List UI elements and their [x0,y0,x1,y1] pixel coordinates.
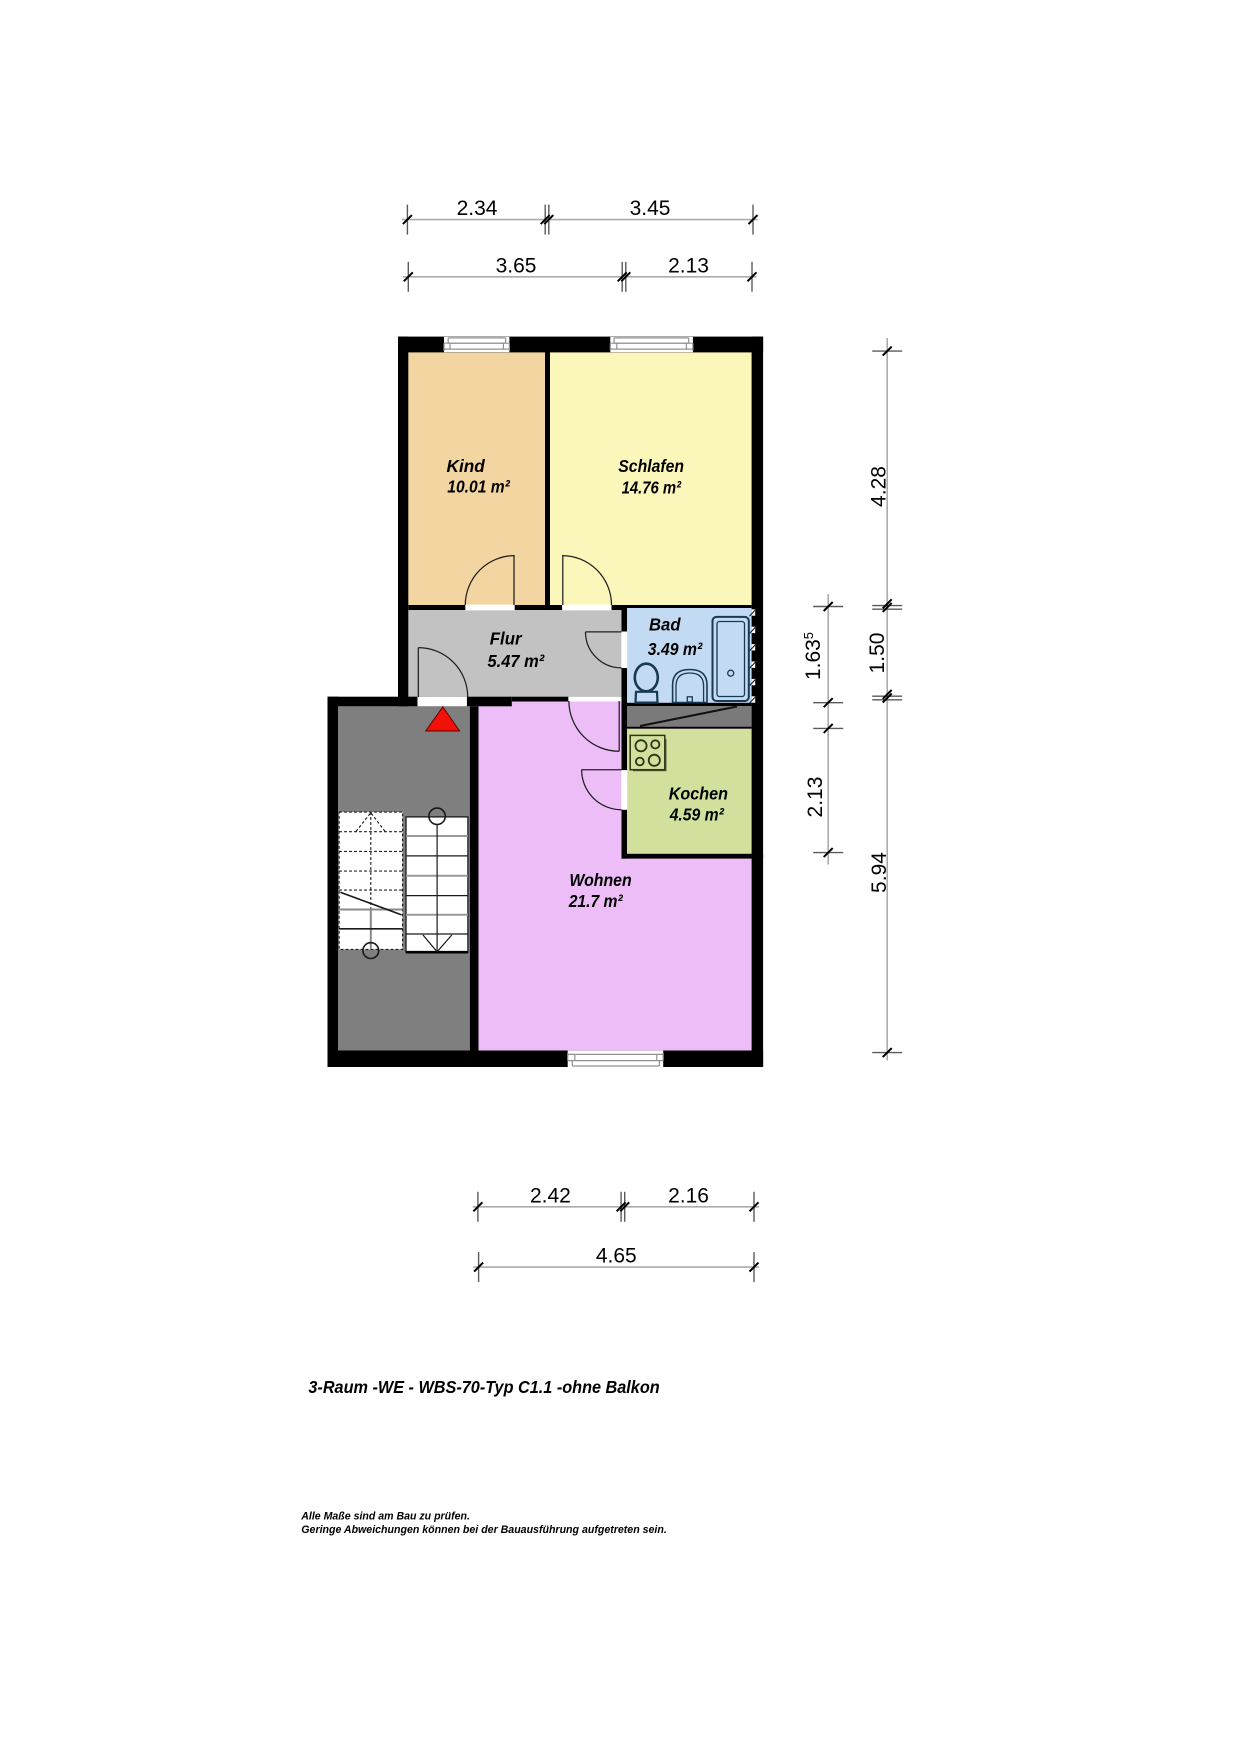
svg-text:3.65: 3.65 [496,254,537,277]
svg-text:5.94: 5.94 [868,852,891,893]
svg-text:2.13: 2.13 [668,254,709,277]
svg-text:3-Raum -WE - WBS-70-Typ C1.1 -: 3-Raum -WE - WBS-70-Typ C1.1 -ohne Balko… [308,1377,659,1397]
svg-text:Flur: Flur [490,628,523,648]
svg-text:21.7 m²: 21.7 m² [568,891,624,911]
svg-text:3.49 m²: 3.49 m² [648,639,703,659]
svg-text:Bad: Bad [649,615,681,635]
svg-text:4.28: 4.28 [868,466,891,507]
svg-text:Kind: Kind [447,456,486,476]
svg-text:2.16: 2.16 [668,1184,709,1207]
svg-text:10.01 m²: 10.01 m² [447,477,511,497]
svg-text:3.45: 3.45 [630,197,671,220]
svg-text:Alle Maße sind am Bau zu prüfe: Alle Maße sind am Bau zu prüfen. [300,1511,470,1523]
svg-text:2.13: 2.13 [804,777,827,818]
svg-text:Schlafen: Schlafen [618,456,684,476]
svg-text:Geringe Abweichungen können be: Geringe Abweichungen können bei der Baua… [301,1524,667,1536]
svg-text:4.65: 4.65 [596,1245,637,1268]
svg-text:5.47 m²: 5.47 m² [488,651,546,671]
svg-text:14.76 m²: 14.76 m² [622,478,682,498]
svg-text:2.42: 2.42 [530,1184,571,1207]
svg-text:Wohnen: Wohnen [569,870,631,890]
svg-text:1.50: 1.50 [866,633,889,674]
svg-text:4.59 m²: 4.59 m² [669,804,725,824]
svg-text:2.34: 2.34 [457,197,498,220]
svg-text:Kochen: Kochen [669,783,728,803]
